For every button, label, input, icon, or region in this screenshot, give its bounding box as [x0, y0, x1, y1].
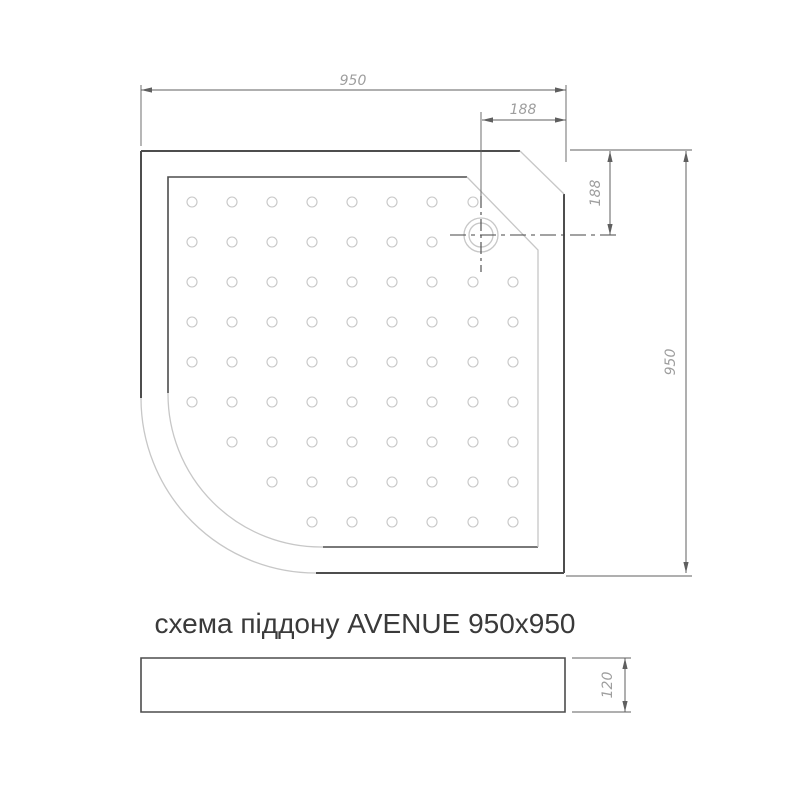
dimension-label-188-horizontal: 188 [510, 102, 537, 118]
drawing-caption: схема піддону AVENUE 950x950 [154, 608, 575, 639]
outer-corner-round [141, 398, 316, 573]
anti-slip-dot [347, 357, 357, 367]
anti-slip-dot [387, 397, 397, 407]
anti-slip-dot [267, 237, 277, 247]
anti-slip-dot [468, 277, 478, 287]
anti-slip-dot [307, 197, 317, 207]
anti-slip-dot [387, 517, 397, 527]
anti-slip-dot [387, 197, 397, 207]
anti-slip-dot [307, 517, 317, 527]
anti-slip-dot [267, 277, 277, 287]
profile-outline [141, 658, 565, 712]
anti-slip-dot [427, 277, 437, 287]
anti-slip-dot [187, 237, 197, 247]
anti-slip-dot [347, 317, 357, 327]
anti-slip-dot [187, 197, 197, 207]
anti-slip-dot [227, 237, 237, 247]
anti-slip-dot [307, 357, 317, 367]
inner-corner-round [168, 393, 323, 547]
anti-slip-dot [468, 517, 478, 527]
anti-slip-dot [267, 197, 277, 207]
anti-slip-dot [187, 317, 197, 327]
anti-slip-dot [427, 397, 437, 407]
anti-slip-dot [468, 437, 478, 447]
top-view [141, 112, 617, 573]
anti-slip-dot [508, 477, 518, 487]
anti-slip-dot [427, 197, 437, 207]
anti-slip-dot [307, 317, 317, 327]
anti-slip-dot [508, 437, 518, 447]
shower-tray-schematic: 950 188 188 950 схема піддону AVENUE 950… [0, 0, 800, 800]
anti-slip-dot [187, 357, 197, 367]
outer-corner-chamfer [520, 151, 564, 194]
dimension-label-950-top: 950 [340, 73, 367, 89]
anti-slip-dot [427, 437, 437, 447]
dimension-drain-offset-y: 188 [570, 150, 692, 235]
anti-slip-dot [267, 317, 277, 327]
anti-slip-dot [347, 437, 357, 447]
anti-slip-dot [347, 397, 357, 407]
anti-slip-dot [227, 437, 237, 447]
anti-slip-dot [267, 437, 277, 447]
anti-slip-dot [227, 197, 237, 207]
technical-drawing-page: 950 188 188 950 схема піддону AVENUE 950… [0, 0, 800, 800]
anti-slip-dot [267, 397, 277, 407]
anti-slip-dot [227, 317, 237, 327]
anti-slip-dot [427, 477, 437, 487]
anti-slip-dot [427, 237, 437, 247]
anti-slip-dot [267, 357, 277, 367]
anti-slip-dot [427, 357, 437, 367]
anti-slip-dot [387, 437, 397, 447]
anti-slip-dot [508, 517, 518, 527]
anti-slip-dot [508, 357, 518, 367]
dimension-drain-offset-x: 188 [482, 102, 566, 120]
anti-slip-dot [347, 277, 357, 287]
anti-slip-dot [387, 237, 397, 247]
anti-slip-dot [187, 397, 197, 407]
anti-slip-dot [508, 317, 518, 327]
anti-slip-dot [347, 517, 357, 527]
anti-slip-dot [347, 197, 357, 207]
anti-slip-dot [307, 277, 317, 287]
dimension-label-950-right: 950 [663, 349, 679, 376]
anti-slip-dot [347, 477, 357, 487]
dimension-profile-height: 120 [572, 658, 631, 712]
anti-slip-dot [468, 397, 478, 407]
anti-slip-dot [468, 317, 478, 327]
anti-slip-dot [227, 277, 237, 287]
anti-slip-dot [468, 477, 478, 487]
dimension-label-188-vertical: 188 [588, 180, 604, 207]
anti-slip-dot [468, 357, 478, 367]
anti-slip-dot [267, 477, 277, 487]
anti-slip-dot [307, 437, 317, 447]
dimension-top-width: 950 [141, 73, 566, 162]
anti-slip-dot [227, 357, 237, 367]
anti-slip-dot [387, 357, 397, 367]
anti-slip-dot [387, 477, 397, 487]
anti-slip-dot [187, 277, 197, 287]
anti-slip-dot [427, 317, 437, 327]
anti-slip-dot [387, 317, 397, 327]
anti-slip-dot [387, 277, 397, 287]
anti-slip-dot [427, 517, 437, 527]
dimension-label-120: 120 [600, 672, 616, 699]
anti-slip-dot [508, 397, 518, 407]
inner-edge-top-left [168, 177, 467, 393]
dimension-side-height: 950 [566, 151, 692, 576]
side-profile-view: 120 [141, 658, 631, 712]
anti-slip-dot [347, 237, 357, 247]
anti-slip-dot [468, 197, 478, 207]
anti-slip-dot [227, 397, 237, 407]
anti-slip-dot [307, 477, 317, 487]
anti-slip-dot [307, 237, 317, 247]
anti-slip-dot [307, 397, 317, 407]
anti-slip-dot [508, 277, 518, 287]
